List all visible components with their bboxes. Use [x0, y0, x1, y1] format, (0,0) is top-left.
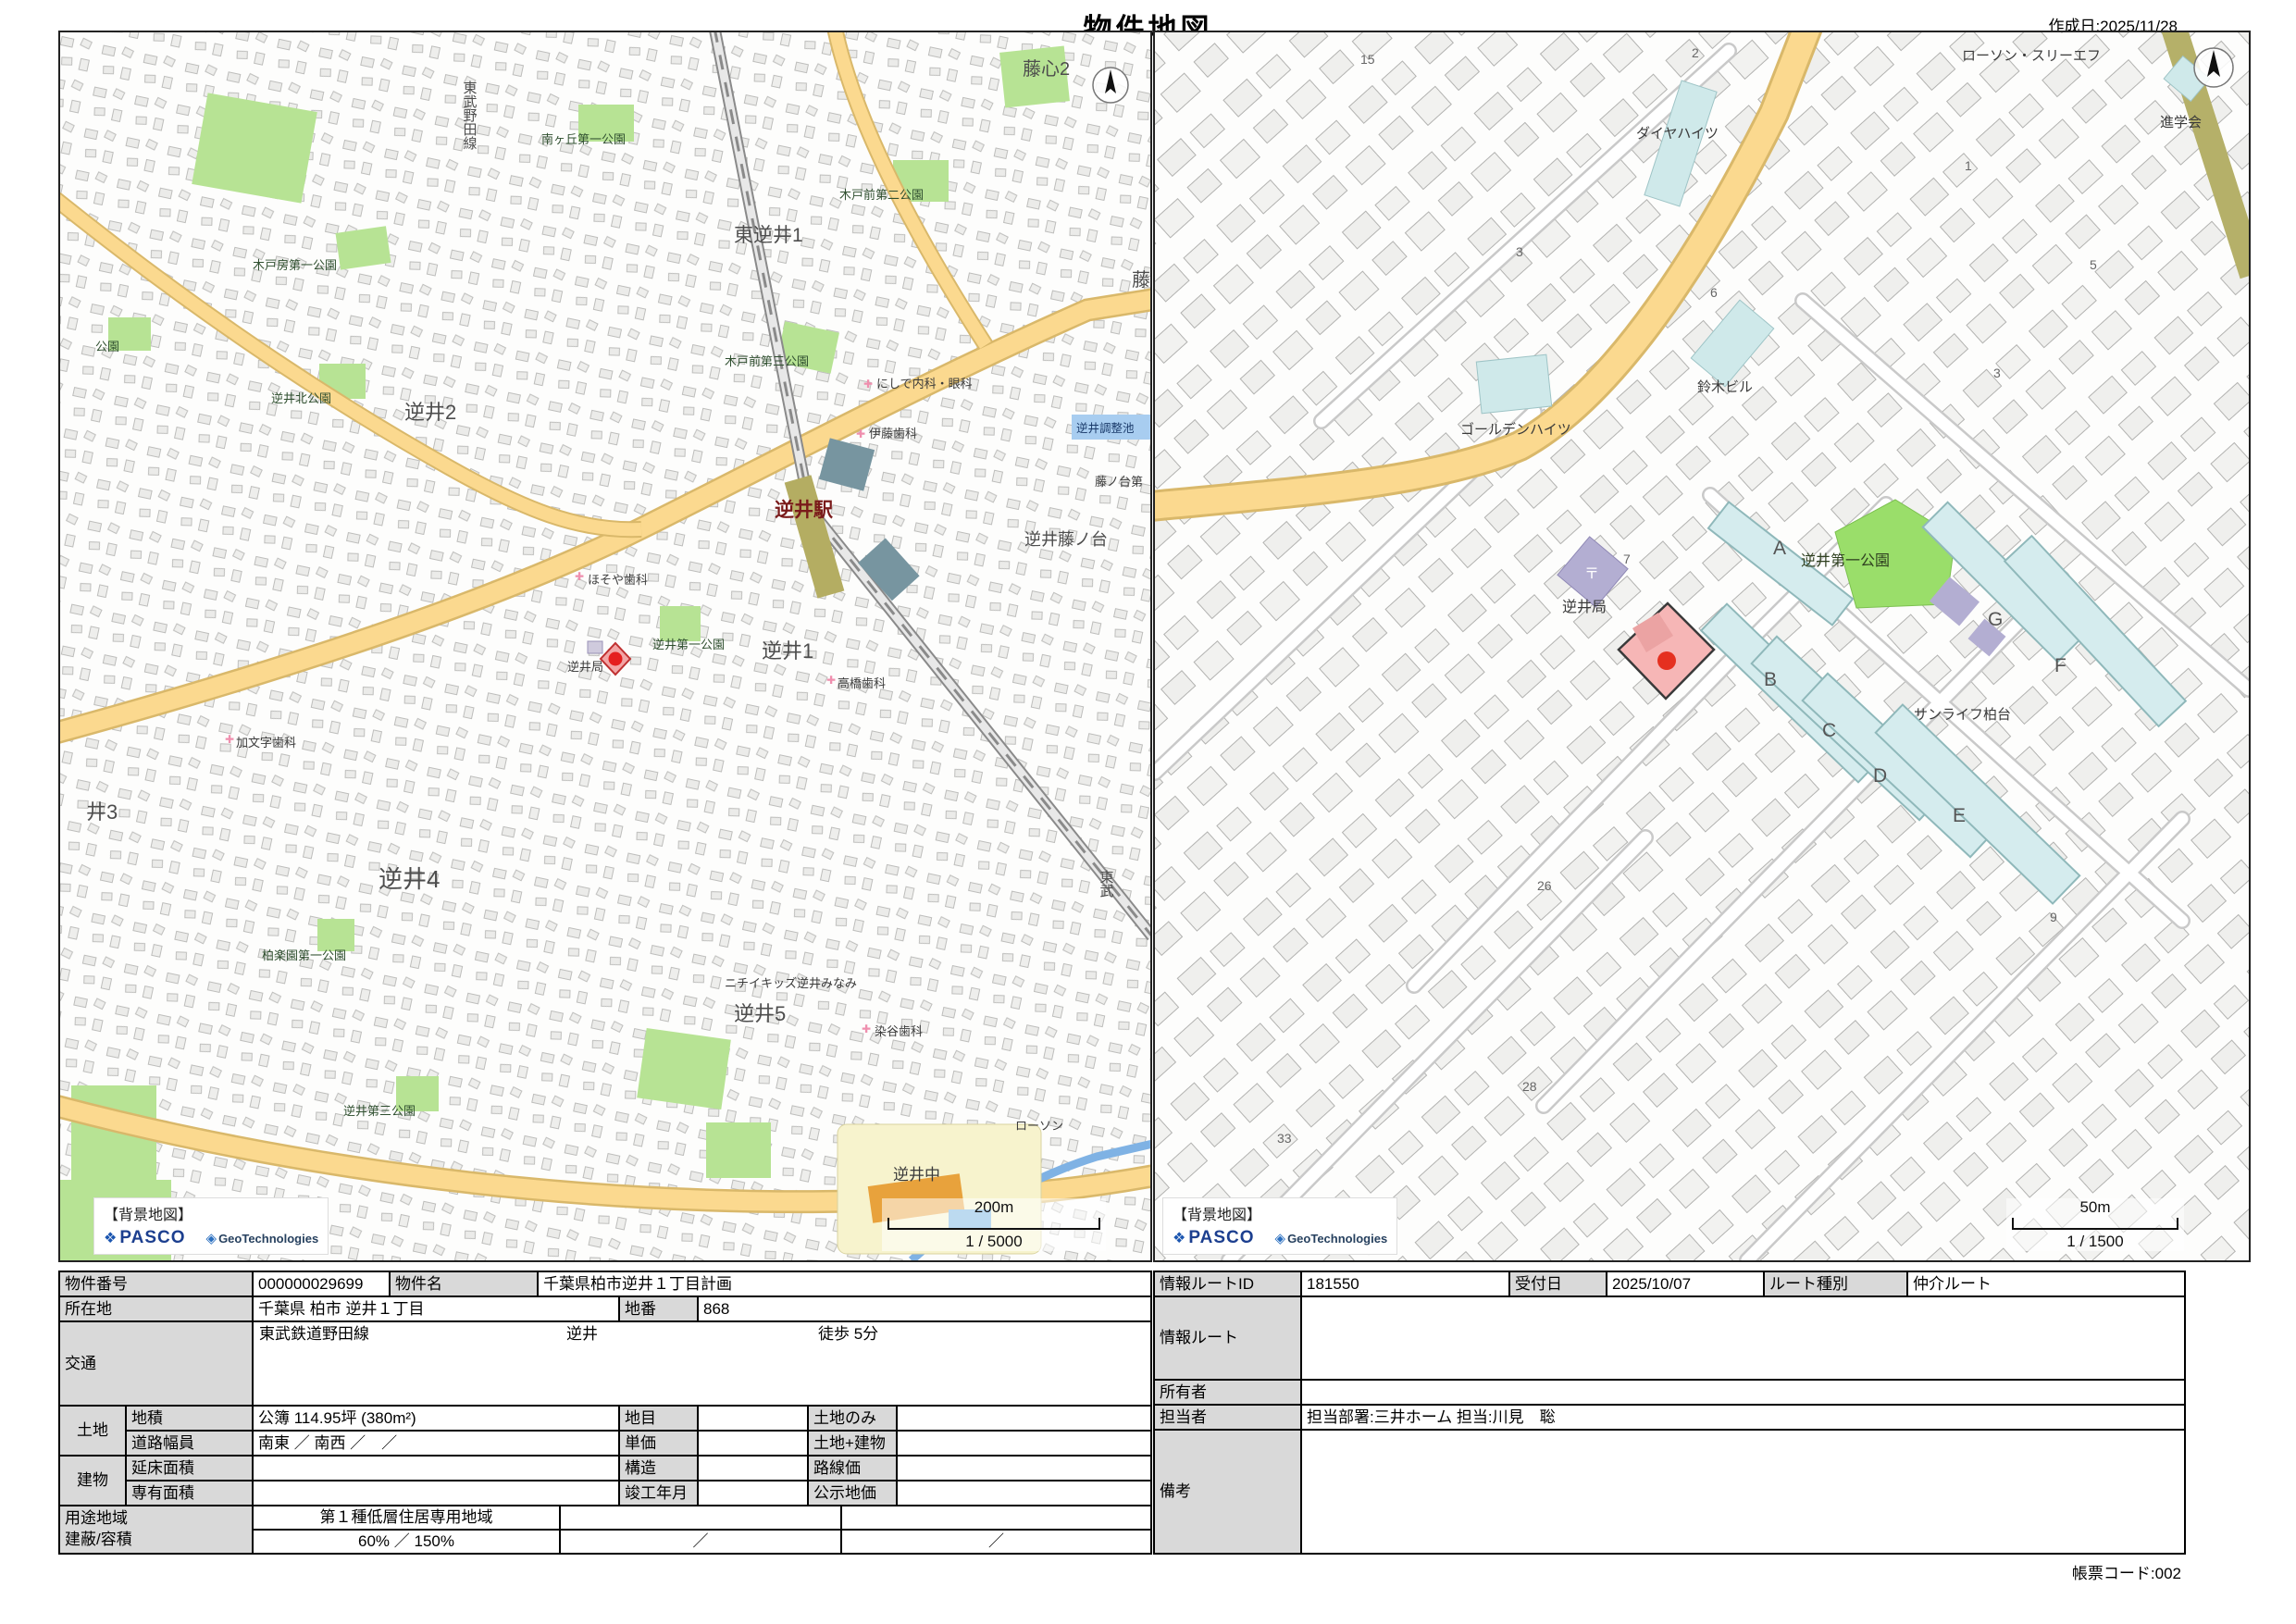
zoning-value2 — [560, 1506, 841, 1530]
geotechnologies-logo: ◈GeoTechnologies — [206, 1230, 319, 1246]
route-type-label: ルート種別 — [1764, 1271, 1907, 1296]
label-park: 公園 — [95, 340, 119, 353]
label-sunlife: サンライフ柏台 — [1914, 707, 2011, 723]
svg-text:2: 2 — [1692, 45, 1699, 60]
road-width-label: 道路幅員 — [126, 1431, 253, 1456]
property-dot — [1657, 651, 1676, 670]
svg-text:3: 3 — [1993, 366, 2001, 380]
land-category-value — [698, 1406, 808, 1431]
credit-box: 【背景地図】 ❖PASCO ◈GeoTechnologies — [1162, 1197, 1397, 1255]
scale-indicator: 200m 1 / 5000 — [882, 1198, 1106, 1251]
buildings-texture — [60, 32, 1150, 1260]
block-label-g: G — [1988, 609, 2003, 630]
route-price-label: 路線価 — [808, 1456, 897, 1481]
label-kidobo-park: 木戸房第一公園 — [253, 258, 337, 272]
property-dot — [609, 652, 623, 666]
transport-value: 東武鉄道野田線 逆井 徒歩 5分 — [253, 1321, 1151, 1406]
structure-label: 構造 — [619, 1456, 698, 1481]
label-sakasai-post: 逆井局 — [567, 660, 603, 674]
transport-line: 東武鉄道野田線 — [259, 1325, 369, 1344]
svg-text:✚: ✚ — [225, 733, 234, 746]
scale-ratio: 1 / 5000 — [887, 1233, 1100, 1251]
road-width-value: 南東 ／ 南西 ／ ／ — [253, 1431, 619, 1456]
label-takahashi-dental: 高橋歯科 — [838, 676, 886, 690]
label-lawson-three-f: ローソン・スリーエフ — [1962, 48, 2101, 64]
svg-text:✚: ✚ — [826, 674, 836, 687]
land-only-value — [897, 1406, 1151, 1431]
label-hosoya-dental: ほそや歯科 — [588, 573, 648, 587]
svg-text:15: 15 — [1360, 52, 1375, 67]
completion-value — [698, 1481, 808, 1506]
label-junior-high: 逆井中 — [893, 1166, 940, 1184]
credit-title: 【背景地図】 — [1173, 1202, 1387, 1224]
route-info-table: 情報ルートID 181550 受付日 2025/10/07 ルート種別 仲介ルー… — [1153, 1271, 2186, 1555]
block-label-c: C — [1822, 720, 1836, 741]
svg-text:7: 7 — [1623, 552, 1631, 566]
reception-date-label: 受付日 — [1509, 1271, 1607, 1296]
reception-date-value: 2025/10/07 — [1607, 1271, 1764, 1296]
zoning-coverage-label: 用途地域 建蔽/容積 — [59, 1506, 253, 1554]
svg-text:5: 5 — [2090, 257, 2097, 272]
lot-no-value: 868 — [698, 1296, 1151, 1321]
scale-bar — [887, 1218, 1100, 1230]
label-shingakukai: 進学会 — [2160, 115, 2202, 130]
info-route-id-value: 181550 — [1301, 1271, 1509, 1296]
label-kashiwa-rakuen-park: 柏楽園第一公園 — [262, 948, 346, 962]
staff-value: 担当部署:三井ホーム 担当:川見 聡 — [1301, 1405, 2185, 1430]
scale-indicator: 50m 1 / 1500 — [2006, 1198, 2184, 1251]
structure-value — [698, 1456, 808, 1481]
total-floor-label: 延床面積 — [126, 1456, 253, 1481]
coverage-value: 60% ／ 150% — [253, 1530, 560, 1554]
label-daiya-heights: ダイヤハイツ — [1636, 126, 1719, 142]
pasco-logo: ❖PASCO — [1173, 1228, 1255, 1248]
route-price-value — [897, 1456, 1151, 1481]
info-route-value — [1301, 1296, 2185, 1380]
scale-bar — [2012, 1218, 2178, 1230]
geotechnologies-logo-icon: ◈ — [1275, 1231, 1286, 1246]
pasco-logo-icon: ❖ — [104, 1231, 118, 1246]
label-chosei-pond: 逆井調整池 — [1076, 421, 1135, 435]
overview-map-canvas: ✚✚✚ ✚✚✚ 藤心2 東武野田線 南ヶ丘第一公園 木戸房第一公園 東逆井1 木… — [60, 32, 1150, 1260]
label-minamigaoka-park: 南ヶ丘第一公園 — [541, 132, 626, 146]
label-sakasai-dai1-park: 逆井第一公園 — [652, 638, 725, 651]
info-route-label: 情報ルート — [1154, 1296, 1301, 1380]
land-label: 土地 — [59, 1406, 126, 1456]
remarks-label: 備考 — [1154, 1430, 1301, 1554]
credit-box: 【背景地図】 ❖PASCO ◈GeoTechnologies — [93, 1197, 329, 1255]
label-nishide-clinic: にしで内科・眼科 — [876, 377, 973, 391]
svg-text:28: 28 — [1522, 1079, 1537, 1094]
svg-text:3: 3 — [1516, 244, 1523, 259]
label-fujinodai-dai: 藤ノ台第 — [1095, 475, 1143, 489]
remarks-value — [1301, 1430, 2185, 1554]
label-sakasai-fujinodai: 逆井藤ノ台 — [1024, 530, 1108, 549]
transport-station: 逆井 — [566, 1325, 598, 1344]
completion-label: 竣工年月 — [619, 1481, 698, 1506]
owner-value — [1301, 1380, 2185, 1405]
compass-icon — [1093, 68, 1128, 103]
label-i3: 井3 — [86, 800, 118, 824]
svg-text:✚: ✚ — [862, 1023, 871, 1035]
lot-no-label: 地番 — [619, 1296, 698, 1321]
svg-text:33: 33 — [1277, 1131, 1292, 1146]
block-label-b: B — [1764, 669, 1777, 690]
pasco-logo: ❖PASCO — [104, 1228, 186, 1248]
block-label-f: F — [2054, 655, 2066, 676]
total-floor-value — [253, 1456, 619, 1481]
block-label-d: D — [1873, 765, 1887, 787]
geotechnologies-logo-icon: ◈ — [206, 1231, 217, 1246]
block-label-e: E — [1953, 805, 1966, 826]
label-tobu-noda-line: 東武野田線 — [462, 81, 478, 150]
label-sakasai-kita-park: 逆井北公園 — [271, 391, 331, 405]
svg-text:6: 6 — [1710, 285, 1718, 300]
owner-label: 所有者 — [1154, 1380, 1301, 1405]
label-sakasai5: 逆井5 — [734, 1002, 786, 1025]
land-building-value — [897, 1431, 1151, 1456]
land-building-label: 土地+建物 — [808, 1431, 897, 1456]
location-label: 所在地 — [59, 1296, 253, 1321]
info-route-id-label: 情報ルートID — [1154, 1271, 1301, 1296]
label-sakasai-dai1-park: 逆井第一公園 — [1801, 552, 1890, 569]
label-kamonji-dental: 加文字歯科 — [236, 736, 296, 750]
official-price-label: 公示地価 — [808, 1481, 897, 1506]
land-only-label: 土地のみ — [808, 1406, 897, 1431]
scale-distance: 200m — [887, 1198, 1100, 1217]
property-name-label: 物件名 — [390, 1271, 538, 1296]
svg-text:✚: ✚ — [863, 378, 873, 391]
svg-text:1: 1 — [1965, 158, 1972, 173]
label-nichii-kids: ニチイキッズ逆井みなみ — [725, 976, 857, 990]
route-type-value: 仲介ルート — [1907, 1271, 2185, 1296]
land-area-value: 公簿 114.95坪 (380m²) — [253, 1406, 619, 1431]
property-info-table: 物件番号 000000029699 物件名 千葉県柏市逆井１丁目計画 所在地 千… — [58, 1271, 1152, 1555]
label-someya-dental: 染谷歯科 — [875, 1024, 923, 1038]
label-sakasai-dai3-park: 逆井第三公園 — [343, 1104, 416, 1118]
label-ito-dental: 伊藤歯科 — [869, 427, 917, 440]
label-sakasai4: 逆井4 — [379, 865, 440, 893]
property-no-value: 000000029699 — [253, 1271, 390, 1296]
form-code: 帳票コード:002 — [2072, 1560, 2181, 1583]
transport-walk: 徒歩 5分 — [818, 1325, 878, 1344]
overview-map: ✚✚✚ ✚✚✚ 藤心2 東武野田線 南ヶ丘第一公園 木戸房第一公園 東逆井1 木… — [58, 31, 1152, 1262]
label-higashi-sakasai1: 東逆井1 — [734, 225, 803, 246]
label-sakasai2: 逆井2 — [404, 401, 456, 424]
transport-label: 交通 — [59, 1321, 253, 1406]
building-label: 建物 — [59, 1456, 126, 1506]
credit-title: 【背景地図】 — [104, 1202, 318, 1224]
pasco-logo-icon: ❖ — [1173, 1231, 1186, 1246]
label-lawson: ローソン — [1015, 1119, 1063, 1133]
label-suzuki-building: 鈴木ビル — [1697, 379, 1753, 395]
label-fuji: 藤 — [1132, 269, 1150, 291]
detail-map: 〒 ローソン・スリーエフ 進学会 ダイヤハイツ ゴールデンハイツ 鈴木ビル 逆井… — [1153, 31, 2251, 1262]
svg-text:9: 9 — [2050, 910, 2057, 924]
svg-text:✚: ✚ — [856, 428, 865, 440]
label-sakasai-post: 逆井局 — [1562, 599, 1607, 615]
exclusive-area-value — [253, 1481, 619, 1506]
post-mark: 〒 — [1584, 566, 1599, 582]
scale-distance: 50m — [2012, 1198, 2178, 1217]
location-value: 千葉県 柏市 逆井１丁目 — [253, 1296, 619, 1321]
unit-price-label: 単価 — [619, 1431, 698, 1456]
coverage-value2: ／ — [560, 1530, 841, 1554]
label-kidomae2-park: 木戸前第二公園 — [839, 188, 924, 202]
coverage-value3: ／ — [841, 1530, 1151, 1554]
compass-icon — [2194, 48, 2233, 87]
label-sakasai1: 逆井1 — [762, 639, 813, 663]
exclusive-area-label: 専有面積 — [126, 1481, 253, 1506]
staff-label: 担当者 — [1154, 1405, 1301, 1430]
scale-ratio: 1 / 1500 — [2012, 1233, 2178, 1251]
label-fujigokoro2: 藤心2 — [1023, 58, 1070, 80]
detail-map-canvas: 〒 ローソン・スリーエフ 進学会 ダイヤハイツ ゴールデンハイツ 鈴木ビル 逆井… — [1155, 32, 2249, 1260]
official-price-value — [897, 1481, 1151, 1506]
property-name-value: 千葉県柏市逆井１丁目計画 — [538, 1271, 1151, 1296]
svg-text:✚: ✚ — [575, 570, 584, 583]
label-tobu: 東武 — [1098, 870, 1114, 898]
block-label-a: A — [1773, 538, 1786, 559]
geotechnologies-logo: ◈GeoTechnologies — [1275, 1230, 1388, 1246]
land-category-label: 地目 — [619, 1406, 698, 1431]
label-station: 逆井駅 — [775, 499, 834, 521]
label-golden-heights: ゴールデンハイツ — [1460, 421, 1571, 438]
unit-price-value — [698, 1431, 808, 1456]
zoning-value3 — [841, 1506, 1151, 1530]
svg-text:26: 26 — [1537, 878, 1552, 893]
property-no-label: 物件番号 — [59, 1271, 253, 1296]
land-area-label: 地積 — [126, 1406, 253, 1431]
zoning-value: 第１種低層住居専用地域 — [253, 1506, 560, 1530]
label-kidomae3-park: 木戸前第三公園 — [725, 354, 809, 368]
